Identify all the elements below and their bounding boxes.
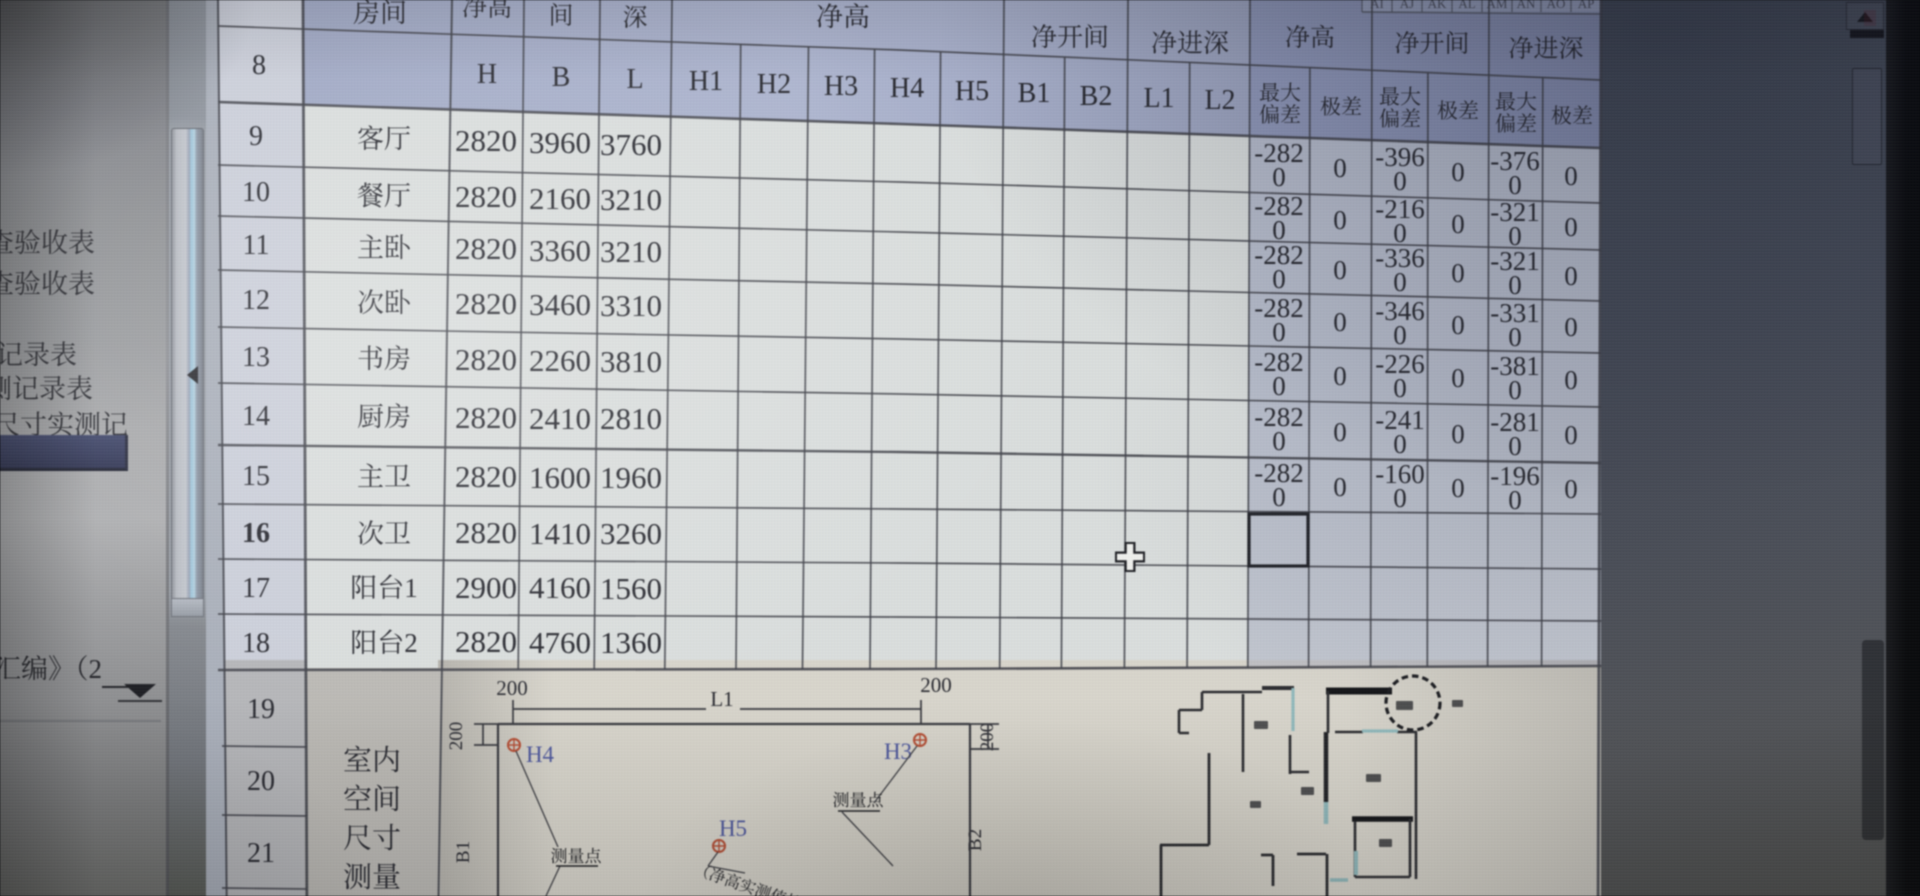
svg-text:净高: 净高 [816, 0, 870, 34]
svg-text:0: 0 [1564, 413, 1578, 452]
svg-text:书房: 书房 [357, 337, 411, 376]
svg-text:15: 15 [242, 454, 270, 494]
svg-text:3210: 3210 [600, 174, 662, 219]
svg-text:0: 0 [1564, 467, 1578, 506]
svg-text:0: 0 [1564, 358, 1578, 397]
svg-text:1410: 1410 [529, 508, 591, 553]
svg-text:200: 200 [496, 672, 528, 702]
svg-text:8: 8 [252, 43, 266, 83]
svg-text:H: H [477, 52, 497, 92]
svg-text:净进深: 净进深 [1151, 23, 1229, 60]
svg-text:偏差: 偏差 [1495, 108, 1537, 138]
svg-text:0: 0 [1451, 251, 1465, 290]
svg-text:B: B [552, 55, 571, 95]
svg-text:11: 11 [243, 223, 270, 263]
svg-text:L2: L2 [1204, 78, 1235, 118]
svg-text:极差: 极差 [1437, 95, 1479, 125]
svg-text:0: 0 [1564, 254, 1578, 293]
svg-text:10: 10 [242, 170, 270, 210]
svg-text:H5: H5 [719, 810, 747, 843]
svg-text:0: 0 [1564, 305, 1578, 344]
svg-text:深: 深 [622, 0, 647, 34]
svg-text:17: 17 [242, 566, 270, 606]
svg-text:0: 0 [1451, 150, 1465, 189]
svg-text:H3: H3 [884, 733, 912, 766]
svg-text:0: 0 [1393, 476, 1407, 515]
svg-text:AJ: AJ [1400, 0, 1414, 12]
svg-text:0: 0 [1508, 478, 1522, 517]
svg-text:0: 0 [1333, 354, 1347, 393]
svg-text:尺寸: 尺寸 [343, 816, 401, 857]
svg-text:4760: 4760 [529, 617, 591, 662]
svg-text:0: 0 [1333, 465, 1347, 504]
svg-text:0: 0 [1333, 198, 1347, 237]
svg-text:房间: 房间 [353, 0, 407, 30]
svg-text:0: 0 [1564, 154, 1578, 193]
svg-text:客厅: 客厅 [357, 117, 411, 156]
svg-text:H4: H4 [890, 66, 924, 106]
svg-text:净高: 净高 [1285, 18, 1335, 54]
svg-text:3810: 3810 [600, 336, 662, 381]
svg-text:3360: 3360 [529, 225, 591, 270]
svg-text:4160: 4160 [529, 562, 591, 607]
svg-text:偏差: 偏差 [1259, 99, 1301, 129]
svg-text:2810: 2810 [600, 393, 662, 438]
svg-text:200: 200 [972, 723, 999, 752]
svg-text:0: 0 [1451, 356, 1465, 395]
svg-text:餐厅: 餐厅 [357, 174, 411, 213]
svg-text:200: 200 [920, 669, 952, 699]
svg-text:3210: 3210 [600, 226, 662, 271]
svg-text:2260: 2260 [529, 335, 591, 380]
svg-text:0: 0 [1451, 466, 1465, 505]
svg-text:3460: 3460 [529, 279, 591, 324]
svg-text:阳台2: 阳台2 [350, 621, 418, 660]
svg-text:厨房: 厨房 [357, 395, 411, 434]
svg-text:2820: 2820 [455, 392, 517, 437]
svg-text:2410: 2410 [529, 393, 591, 438]
svg-text:AK: AK [1428, 0, 1447, 12]
svg-text:L1: L1 [710, 683, 733, 713]
svg-text:16: 16 [242, 511, 270, 551]
svg-text:2820: 2820 [455, 451, 517, 496]
svg-text:室内: 室内 [343, 738, 401, 779]
svg-text:偏差: 偏差 [1379, 103, 1421, 133]
svg-text:0: 0 [1272, 475, 1286, 514]
svg-text:阳台1: 阳台1 [350, 566, 418, 605]
svg-text:3760: 3760 [600, 119, 662, 164]
svg-text:净进深: 净进深 [1508, 29, 1583, 65]
svg-text:次卧: 次卧 [357, 281, 412, 320]
svg-text:测量: 测量 [343, 855, 401, 896]
svg-text:H1: H1 [689, 59, 723, 99]
svg-text:测量点: 测量点 [833, 786, 885, 811]
svg-text:0: 0 [1333, 248, 1347, 287]
svg-text:AN: AN [1517, 0, 1536, 12]
svg-text:AP: AP [1578, 0, 1595, 12]
svg-text:0: 0 [1333, 300, 1347, 339]
svg-text:L1: L1 [1143, 76, 1174, 116]
svg-text:3260: 3260 [600, 508, 662, 553]
svg-text:测量点: 测量点 [551, 842, 603, 867]
svg-text:18: 18 [242, 621, 270, 661]
svg-text:H5: H5 [955, 69, 989, 109]
svg-text:AO: AO [1547, 0, 1566, 12]
svg-text:9: 9 [249, 114, 263, 154]
svg-text:13: 13 [242, 335, 270, 375]
svg-text:2820: 2820 [455, 115, 517, 160]
svg-text:1600: 1600 [529, 452, 591, 497]
svg-text:极差: 极差 [1320, 91, 1362, 121]
svg-text:2820: 2820 [455, 223, 517, 268]
svg-text:0: 0 [1333, 410, 1347, 449]
svg-text:3960: 3960 [529, 117, 591, 162]
svg-text:B1: B1 [448, 841, 475, 863]
svg-text:H2: H2 [757, 62, 791, 102]
svg-text:间: 间 [548, 0, 573, 32]
svg-text:0: 0 [1564, 205, 1578, 244]
svg-text:B2: B2 [1080, 74, 1113, 114]
svg-text:2820: 2820 [455, 278, 517, 323]
svg-text:3310: 3310 [600, 280, 662, 325]
svg-text:AL: AL [1458, 0, 1475, 12]
svg-text:B2: B2 [960, 829, 987, 851]
svg-text:200: 200 [441, 722, 468, 751]
svg-text:主卧: 主卧 [357, 226, 412, 265]
svg-text:次卫: 次卫 [357, 512, 411, 551]
svg-text:B1: B1 [1018, 71, 1051, 111]
svg-text:2820: 2820 [455, 616, 517, 661]
svg-text:2820: 2820 [455, 171, 517, 216]
svg-text:12: 12 [242, 278, 270, 318]
svg-text:0: 0 [1451, 412, 1465, 451]
svg-text:2820: 2820 [455, 507, 517, 552]
svg-text:20: 20 [247, 759, 275, 799]
svg-text:14: 14 [242, 394, 270, 434]
svg-text:21: 21 [247, 831, 275, 871]
svg-text:H3: H3 [824, 64, 858, 104]
svg-text:空间: 空间 [343, 777, 401, 818]
svg-text:净开间: 净开间 [1031, 17, 1109, 54]
svg-text:1360: 1360 [600, 617, 662, 662]
svg-text:2900: 2900 [455, 562, 517, 607]
svg-text:净开间: 净开间 [1394, 24, 1469, 60]
svg-text:净高: 净高 [462, 0, 512, 24]
svg-text:主卫: 主卫 [357, 455, 411, 494]
svg-text:1960: 1960 [600, 452, 662, 497]
svg-text:0: 0 [1451, 303, 1465, 342]
svg-text:1560: 1560 [600, 563, 662, 608]
svg-text:H4: H4 [526, 736, 555, 769]
svg-text:2160: 2160 [529, 173, 591, 218]
svg-text:19: 19 [247, 687, 275, 727]
svg-text:0: 0 [1451, 202, 1465, 241]
svg-text:0: 0 [1333, 146, 1347, 185]
svg-text:L: L [626, 57, 643, 97]
svg-text:极差: 极差 [1551, 100, 1593, 130]
svg-text:2820: 2820 [455, 334, 517, 379]
